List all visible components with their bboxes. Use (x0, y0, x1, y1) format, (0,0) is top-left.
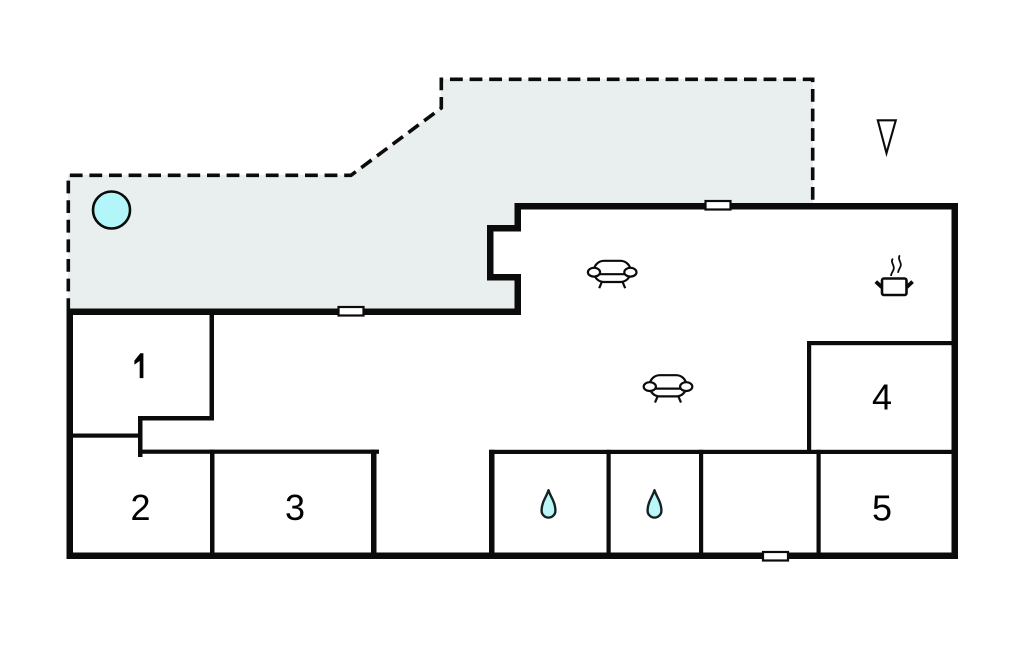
svg-text:4: 4 (872, 377, 892, 418)
svg-text:5: 5 (872, 488, 892, 529)
svg-text:3: 3 (285, 487, 305, 528)
svg-text:2: 2 (130, 487, 150, 528)
